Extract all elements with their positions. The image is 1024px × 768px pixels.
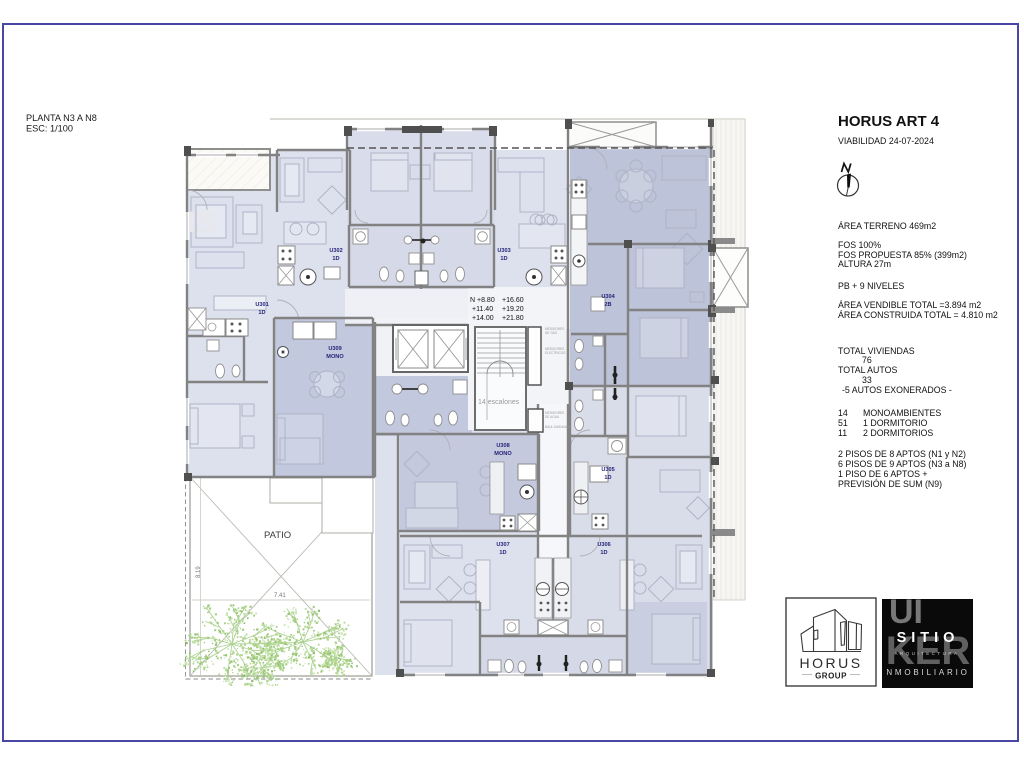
svg-text:U301: U301 bbox=[255, 302, 268, 308]
svg-text:U303: U303 bbox=[497, 248, 510, 254]
svg-text:ÁREA CONSTRUIDA TOTAL = 4.810: ÁREA CONSTRUIDA TOTAL = 4.810 m2 bbox=[838, 310, 998, 320]
svg-text:76: 76 bbox=[862, 355, 872, 365]
svg-text:+11.40: +11.40 bbox=[472, 306, 493, 313]
svg-text:VIABILIDAD 24-07-2024: VIABILIDAD 24-07-2024 bbox=[838, 136, 934, 146]
svg-text:MONOAMBIENTES: MONOAMBIENTES bbox=[863, 408, 941, 418]
svg-text:NMOBILIARIO: NMOBILIARIO bbox=[886, 668, 969, 677]
svg-text:1 DORMITORIO: 1 DORMITORIO bbox=[863, 418, 928, 428]
svg-text:14 escalones: 14 escalones bbox=[478, 399, 520, 406]
svg-text:+16.60: +16.60 bbox=[502, 297, 524, 304]
svg-text:+14.00: +14.00 bbox=[472, 315, 494, 322]
svg-text:+19.20: +19.20 bbox=[502, 306, 524, 313]
svg-text:U306: U306 bbox=[597, 542, 610, 548]
svg-text:IS: IS bbox=[188, 206, 216, 239]
svg-text:2 DORMITORIOS: 2 DORMITORIOS bbox=[863, 428, 933, 438]
svg-text:TOTAL VIVIENDAS: TOTAL VIVIENDAS bbox=[838, 346, 915, 356]
svg-text:PB + 9 NIVELES: PB + 9 NIVELES bbox=[838, 281, 904, 291]
svg-text:MONO: MONO bbox=[326, 354, 344, 360]
svg-text:51: 51 bbox=[838, 418, 848, 428]
svg-text:GROUP: GROUP bbox=[815, 672, 847, 681]
svg-text:U302: U302 bbox=[329, 248, 342, 254]
svg-text:33: 33 bbox=[862, 375, 872, 385]
svg-text:ELECTRICOS: ELECTRICOS bbox=[545, 351, 565, 355]
svg-text:11: 11 bbox=[838, 428, 847, 438]
svg-text:HORUS: HORUS bbox=[799, 655, 862, 671]
svg-text:PREVISIÓN DE SUM (N9): PREVISIÓN DE SUM (N9) bbox=[838, 479, 942, 489]
svg-text:HORUS ART 4: HORUS ART 4 bbox=[838, 113, 940, 130]
svg-text:1D: 1D bbox=[500, 256, 507, 262]
svg-text:DE GAS: DE GAS bbox=[545, 331, 557, 335]
svg-text:-5 AUTOS EXONERADOS -: -5 AUTOS EXONERADOS - bbox=[842, 385, 952, 395]
svg-text:N +8.80: N +8.80 bbox=[470, 297, 495, 304]
svg-text:1D: 1D bbox=[600, 550, 607, 556]
svg-text:2B: 2B bbox=[604, 302, 611, 308]
svg-text:7.41: 7.41 bbox=[274, 593, 286, 599]
svg-text:14: 14 bbox=[838, 408, 848, 418]
svg-text:FOS 100%: FOS 100% bbox=[838, 240, 881, 250]
svg-text:ALTURA 27m: ALTURA 27m bbox=[838, 259, 891, 269]
svg-text:1D: 1D bbox=[499, 550, 506, 556]
svg-text:1D: 1D bbox=[604, 475, 611, 481]
svg-text:TOTAL AUTOS: TOTAL AUTOS bbox=[838, 365, 897, 375]
svg-text:PLANTA N3 A N8: PLANTA N3 A N8 bbox=[26, 113, 97, 123]
svg-text:U309: U309 bbox=[328, 346, 341, 352]
svg-text:DE AGUA: DE AGUA bbox=[545, 415, 560, 419]
svg-text:PATIO: PATIO bbox=[264, 530, 291, 541]
svg-text:2 PISOS DE 8 APTOS (N1 y N2): 2 PISOS DE 8 APTOS (N1 y N2) bbox=[838, 449, 966, 459]
svg-text:6 PISOS DE 9 APTOS (N3 a N8): 6 PISOS DE 9 APTOS (N3 a N8) bbox=[838, 459, 966, 469]
svg-text:8.19: 8.19 bbox=[196, 566, 202, 578]
svg-text:1D: 1D bbox=[332, 256, 339, 262]
svg-text:+21.80: +21.80 bbox=[502, 315, 524, 322]
svg-text:1 PISO DE 6 APTOS +: 1 PISO DE 6 APTOS + bbox=[838, 469, 928, 479]
svg-text:U307: U307 bbox=[496, 542, 509, 548]
svg-text:SITIO: SITIO bbox=[897, 630, 960, 646]
svg-text:BAUL MUDANZA: BAUL MUDANZA bbox=[545, 425, 571, 429]
svg-text:ÁREA VENDIBLE TOTAL =3.894 m2: ÁREA VENDIBLE TOTAL =3.894 m2 bbox=[838, 300, 981, 310]
svg-text:U304: U304 bbox=[601, 294, 615, 300]
svg-text:ARQUITECTURA: ARQUITECTURA bbox=[894, 651, 959, 656]
svg-text:U308: U308 bbox=[496, 443, 509, 449]
svg-text:MONO: MONO bbox=[494, 451, 512, 457]
svg-text:U305: U305 bbox=[601, 467, 614, 473]
svg-text:ESC: 1/100: ESC: 1/100 bbox=[26, 124, 73, 134]
svg-text:1D: 1D bbox=[258, 310, 265, 316]
svg-text:UI: UI bbox=[889, 593, 923, 631]
svg-text:ÁREA TERRENO 469m2: ÁREA TERRENO 469m2 bbox=[838, 221, 936, 231]
